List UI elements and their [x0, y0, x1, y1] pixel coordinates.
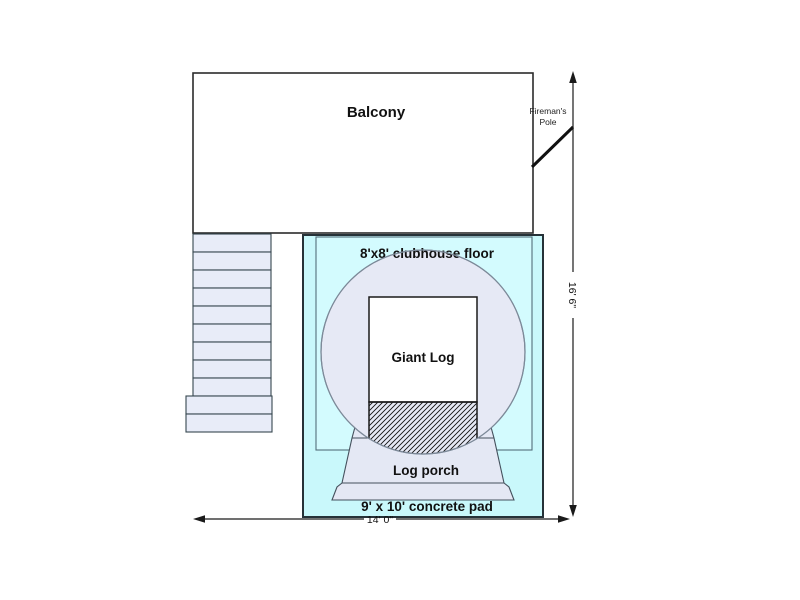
giant-log-label: Giant Log	[392, 350, 455, 365]
firemans-pole-label-line2: Pole	[539, 117, 556, 127]
concrete-pad-label: 9' x 10' concrete pad	[361, 499, 493, 514]
stair-step	[186, 396, 272, 414]
stair-step	[193, 342, 271, 360]
treehouse-plan-drawing: Balcony 8'x8' clubhouse floor Giant Log …	[0, 0, 800, 600]
height-dimension-label: 16' 6"	[566, 282, 578, 308]
stair-step	[193, 306, 271, 324]
width-dimension-label: 14' 0"	[367, 514, 393, 526]
treehouse-plan-canvas: Balcony 8'x8' clubhouse floor Giant Log …	[0, 0, 800, 600]
stair-step	[193, 360, 271, 378]
balcony-label: Balcony	[347, 104, 406, 121]
firemans-pole-label-line1: Fireman's	[529, 106, 566, 116]
stair-step	[193, 234, 271, 252]
stair-step	[193, 378, 271, 396]
stairs	[186, 234, 272, 432]
stair-step	[193, 270, 271, 288]
stair-step	[193, 324, 271, 342]
balcony-rect	[193, 73, 533, 233]
log-porch-label: Log porch	[393, 463, 459, 478]
stair-step	[193, 252, 271, 270]
stair-step	[186, 414, 272, 432]
stair-step	[193, 288, 271, 306]
